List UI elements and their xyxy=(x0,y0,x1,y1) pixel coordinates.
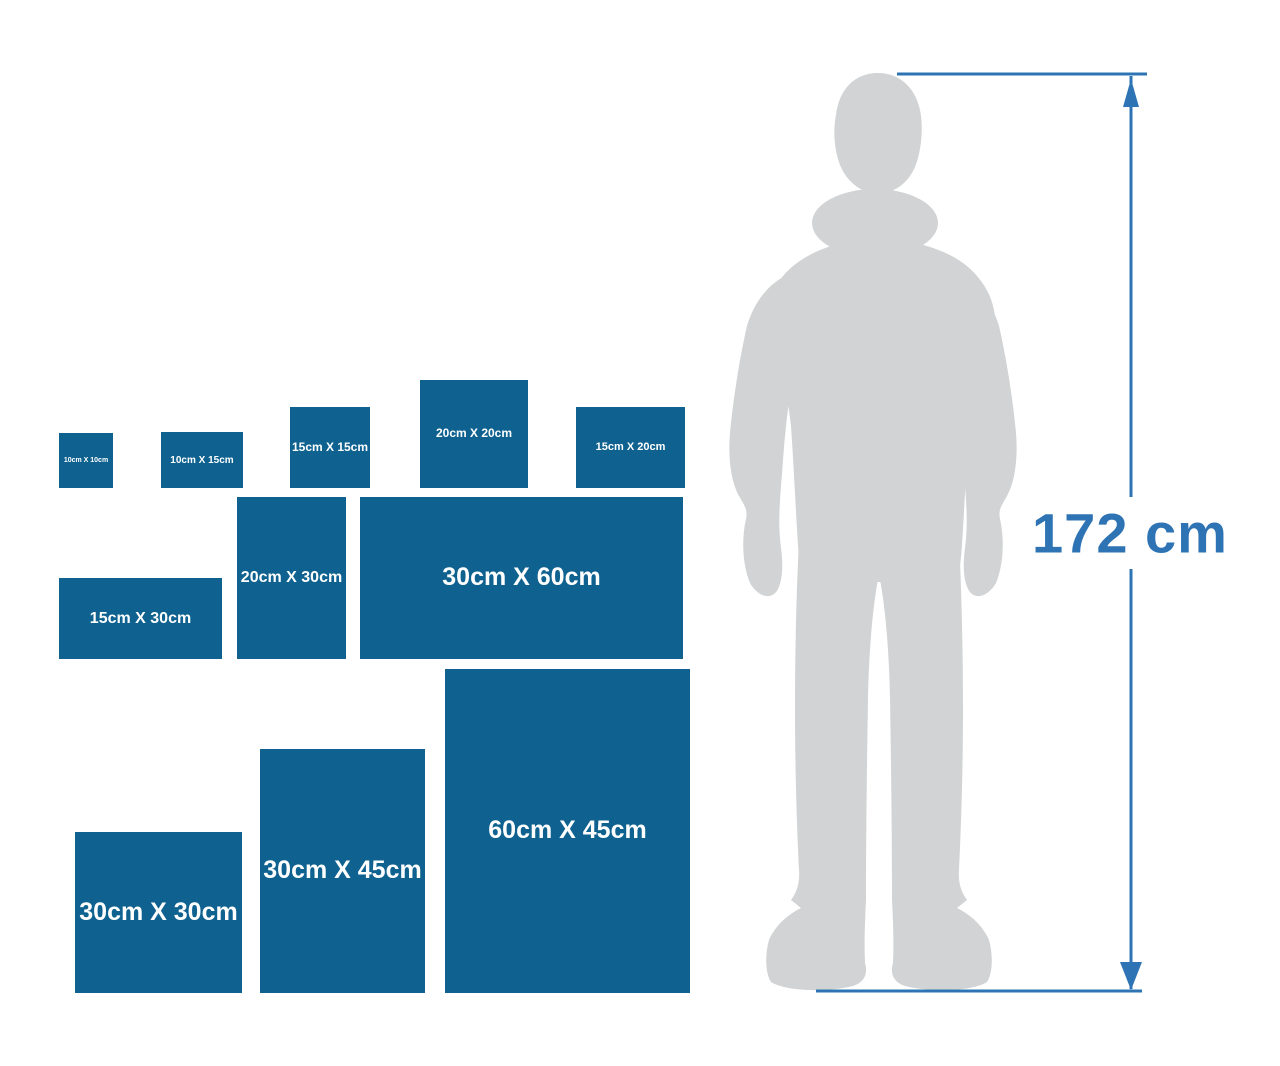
size-box-15x15: 15cm X 15cm xyxy=(290,407,370,488)
size-box-10x10: 10cm X 10cm xyxy=(59,433,113,488)
size-box-label: 30cm X 30cm xyxy=(79,899,237,927)
size-comparison-canvas: 10cm X 10cm10cm X 15cm15cm X 15cm20cm X … xyxy=(0,0,1280,1066)
size-box-label: 15cm X 30cm xyxy=(90,610,191,628)
size-box-label: 15cm X 20cm xyxy=(596,441,666,453)
size-box-60x45: 60cm X 45cm xyxy=(445,669,690,993)
arrowhead-down-icon xyxy=(1120,962,1142,990)
size-box-label: 10cm X 15cm xyxy=(170,455,233,466)
man-silhouette xyxy=(725,70,1035,995)
size-box-label: 20cm X 20cm xyxy=(436,427,512,440)
size-box-label: 30cm X 60cm xyxy=(442,564,600,592)
size-box-label: 60cm X 45cm xyxy=(488,817,646,845)
size-box-label: 20cm X 30cm xyxy=(241,569,342,587)
size-box-label: 30cm X 45cm xyxy=(263,857,421,885)
silhouette-right-leg xyxy=(879,540,992,990)
silhouette-left-leg xyxy=(766,540,879,990)
arrowhead-up-icon xyxy=(1123,79,1139,107)
size-box-15x30: 15cm X 30cm xyxy=(59,578,222,659)
man-silhouette-shape xyxy=(729,73,1016,990)
size-box-30x30: 30cm X 30cm xyxy=(75,832,242,993)
size-box-20x20: 20cm X 20cm xyxy=(420,380,528,488)
size-box-30x45: 30cm X 45cm xyxy=(260,749,425,993)
size-box-20x30: 20cm X 30cm xyxy=(237,497,346,659)
size-box-30x60: 30cm X 60cm xyxy=(360,497,683,659)
size-box-label: 10cm X 10cm xyxy=(64,457,108,465)
size-box-10x15: 10cm X 15cm xyxy=(161,432,243,488)
size-box-label: 15cm X 15cm xyxy=(292,441,368,454)
size-box-15x20: 15cm X 20cm xyxy=(576,407,685,488)
silhouette-head xyxy=(834,73,921,194)
height-label: 172 cm xyxy=(1032,501,1228,566)
